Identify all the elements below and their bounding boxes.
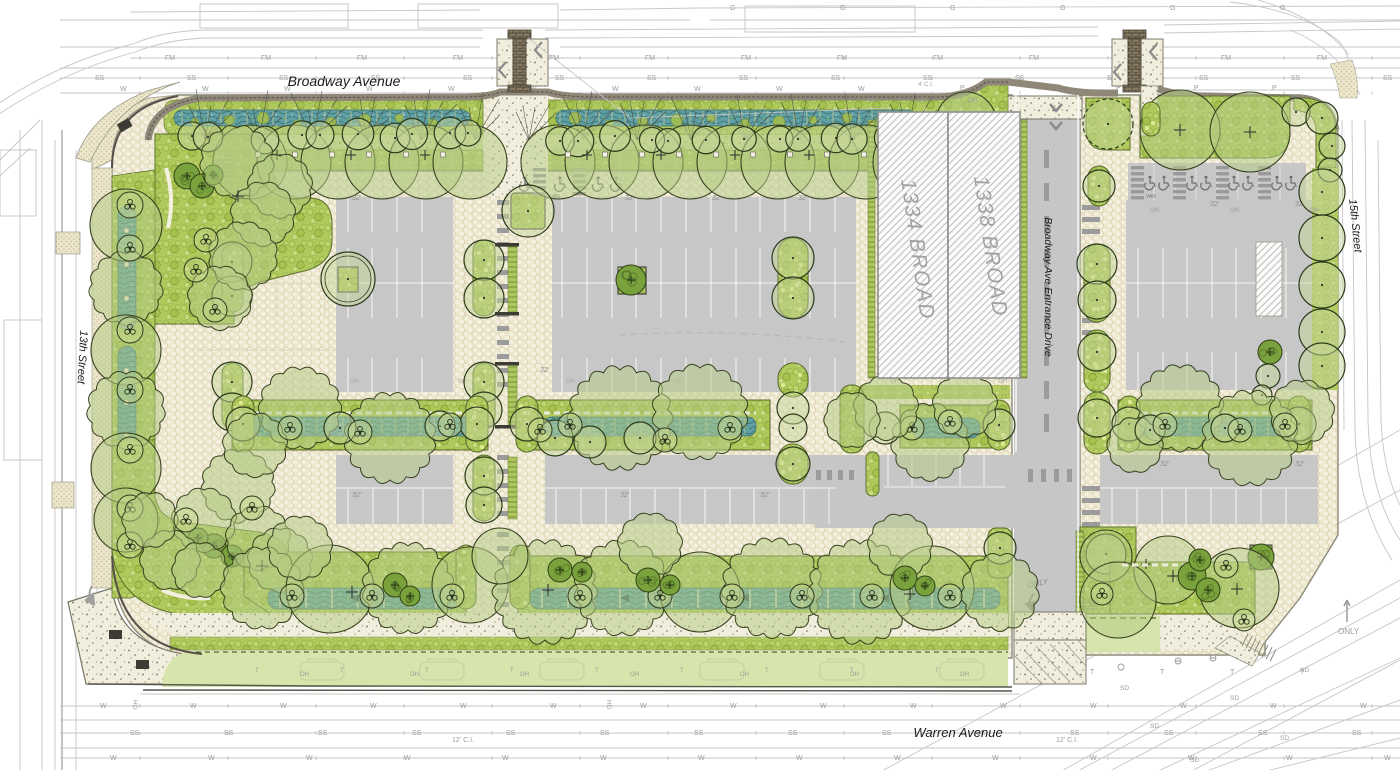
svg-text:W: W xyxy=(1360,703,1367,710)
svg-text:13th Street: 13th Street xyxy=(75,330,90,385)
svg-text:T: T xyxy=(850,668,854,674)
svg-text:W: W xyxy=(370,703,377,710)
svg-text:SS: SS xyxy=(224,730,234,737)
svg-text:W: W xyxy=(460,703,467,710)
svg-text:SS: SS xyxy=(882,730,892,737)
svg-text:T: T xyxy=(1090,669,1095,676)
svg-text:SS: SS xyxy=(739,75,749,82)
svg-text:SS: SS xyxy=(600,730,610,737)
svg-text:SS: SS xyxy=(1070,730,1080,737)
svg-text:OH: OH xyxy=(300,672,309,678)
svg-text:SD: SD xyxy=(1150,723,1159,730)
svg-text:Broadway Ave Entrance Drive: Broadway Ave Entrance Drive xyxy=(1042,217,1054,357)
svg-text:FM: FM xyxy=(1317,55,1327,62)
svg-text:HD: HD xyxy=(131,700,138,710)
svg-text:SS: SS xyxy=(694,730,704,737)
svg-text:SS: SS xyxy=(95,75,105,82)
svg-text:32': 32' xyxy=(540,367,550,374)
svg-text:W: W xyxy=(120,86,127,93)
svg-text:32': 32' xyxy=(760,492,770,499)
svg-text:G: G xyxy=(1280,5,1285,12)
svg-text:T: T xyxy=(510,668,514,674)
svg-text:SS: SS xyxy=(831,75,841,82)
svg-text:W: W xyxy=(208,755,215,762)
svg-text:FM: FM xyxy=(933,55,943,62)
svg-text:FM: FM xyxy=(261,55,271,62)
svg-text:SS: SS xyxy=(788,730,798,737)
svg-text:G: G xyxy=(840,5,845,12)
svg-text:OH: OH xyxy=(968,98,977,104)
svg-text:HD: HD xyxy=(605,700,612,710)
svg-text:W: W xyxy=(698,755,705,762)
svg-text:T: T xyxy=(765,668,769,674)
svg-text:W: W xyxy=(1090,755,1097,762)
svg-text:32': 32' xyxy=(352,492,362,499)
svg-text:T: T xyxy=(1230,669,1235,676)
svg-text:12' C.I.: 12' C.I. xyxy=(1056,737,1078,744)
svg-text:SS: SS xyxy=(412,730,422,737)
svg-text:T: T xyxy=(425,668,429,674)
svg-text:SS: SS xyxy=(187,75,197,82)
svg-text:W: W xyxy=(796,755,803,762)
svg-text:Warren Avenue: Warren Avenue xyxy=(913,725,1002,740)
svg-text:W: W xyxy=(600,755,607,762)
svg-text:12' C.I.: 12' C.I. xyxy=(452,737,474,744)
svg-text:OH: OH xyxy=(520,672,529,678)
svg-text:G: G xyxy=(1170,5,1175,12)
svg-text:W: W xyxy=(776,86,783,93)
svg-text:SS: SS xyxy=(1291,75,1301,82)
svg-text:SS: SS xyxy=(923,75,933,82)
svg-text:SD: SD xyxy=(1120,685,1129,692)
svg-text:T: T xyxy=(935,668,939,674)
svg-text:W: W xyxy=(502,755,509,762)
svg-text:W: W xyxy=(1270,703,1277,710)
svg-text:OH: OH xyxy=(740,672,749,678)
svg-text:32': 32' xyxy=(1160,461,1170,468)
svg-text:OH: OH xyxy=(1150,208,1159,214)
svg-text:W: W xyxy=(306,755,313,762)
svg-text:FM: FM xyxy=(165,55,175,62)
svg-text:W: W xyxy=(1384,755,1391,762)
svg-text:W: W xyxy=(1000,703,1007,710)
svg-text:W: W xyxy=(100,703,107,710)
svg-text:32': 32' xyxy=(620,492,630,499)
svg-text:T: T xyxy=(255,668,259,674)
svg-text:W: W xyxy=(820,703,827,710)
svg-text:G: G xyxy=(730,5,735,12)
svg-text:T: T xyxy=(595,668,599,674)
svg-text:W: W xyxy=(612,86,619,93)
svg-text:SS: SS xyxy=(130,730,140,737)
svg-text:P: P xyxy=(1194,85,1199,92)
svg-text:SD: SD xyxy=(1280,735,1289,742)
svg-text:W: W xyxy=(894,755,901,762)
svg-text:W: W xyxy=(694,86,701,93)
svg-text:SS: SS xyxy=(506,730,516,737)
svg-text:SS: SS xyxy=(1199,75,1209,82)
svg-text:OH: OH xyxy=(410,672,419,678)
svg-text:W: W xyxy=(110,755,117,762)
svg-text:FM: FM xyxy=(645,55,655,62)
svg-text:W: W xyxy=(1180,703,1187,710)
svg-text:SD: SD xyxy=(1190,757,1199,764)
svg-text:W: W xyxy=(1286,755,1293,762)
svg-text:W: W xyxy=(640,703,647,710)
svg-text:FM: FM xyxy=(1221,55,1231,62)
svg-text:OH: OH xyxy=(566,379,575,385)
svg-text:4' C.I.: 4' C.I. xyxy=(918,82,934,88)
svg-text:P: P xyxy=(1272,85,1277,92)
svg-text:W: W xyxy=(858,86,865,93)
svg-text:W: W xyxy=(550,703,557,710)
svg-text:T: T xyxy=(1160,669,1165,676)
svg-text:SS: SS xyxy=(1352,730,1362,737)
svg-text:OH: OH xyxy=(1310,208,1319,214)
svg-text:SD: SD xyxy=(1300,667,1309,674)
svg-text:W: W xyxy=(1090,703,1097,710)
svg-text:SS: SS xyxy=(1383,75,1393,82)
svg-text:FM: FM xyxy=(357,55,367,62)
svg-text:W: W xyxy=(202,86,209,93)
svg-text:FM: FM xyxy=(741,55,751,62)
svg-text:FM: FM xyxy=(453,55,463,62)
svg-text:32': 32' xyxy=(1295,461,1305,468)
svg-text:32': 32' xyxy=(1210,201,1220,208)
svg-text:OH: OH xyxy=(630,672,639,678)
svg-text:SS: SS xyxy=(555,75,565,82)
svg-text:SS: SS xyxy=(463,75,473,82)
svg-text:SS: SS xyxy=(318,730,328,737)
svg-text:VAN: VAN xyxy=(1146,194,1156,200)
svg-text:W: W xyxy=(730,703,737,710)
svg-text:W: W xyxy=(910,703,917,710)
svg-text:W: W xyxy=(992,755,999,762)
svg-text:SS: SS xyxy=(647,75,657,82)
svg-text:OH: OH xyxy=(998,379,1007,385)
svg-text:SS: SS xyxy=(1164,730,1174,737)
svg-text:T: T xyxy=(680,668,684,674)
svg-text:W: W xyxy=(404,755,411,762)
svg-text:SD: SD xyxy=(1230,695,1239,702)
svg-text:SS: SS xyxy=(1258,730,1268,737)
svg-text:OH: OH xyxy=(960,672,969,678)
svg-text:15th Street: 15th Street xyxy=(1346,198,1364,254)
svg-text:OH: OH xyxy=(868,98,877,104)
svg-text:G: G xyxy=(1060,5,1065,12)
svg-text:OH: OH xyxy=(1230,208,1239,214)
svg-text:OH: OH xyxy=(350,379,359,385)
svg-text:FM: FM xyxy=(837,55,847,62)
svg-text:FM: FM xyxy=(1029,55,1039,62)
svg-text:T: T xyxy=(340,668,344,674)
svg-text:G: G xyxy=(950,5,955,12)
svg-text:Broadway Avenue: Broadway Avenue xyxy=(288,73,401,89)
svg-text:W: W xyxy=(280,703,287,710)
svg-text:W: W xyxy=(448,86,455,93)
svg-text:OH: OH xyxy=(918,98,927,104)
svg-text:ONLY: ONLY xyxy=(1338,627,1360,636)
svg-text:W: W xyxy=(190,703,197,710)
